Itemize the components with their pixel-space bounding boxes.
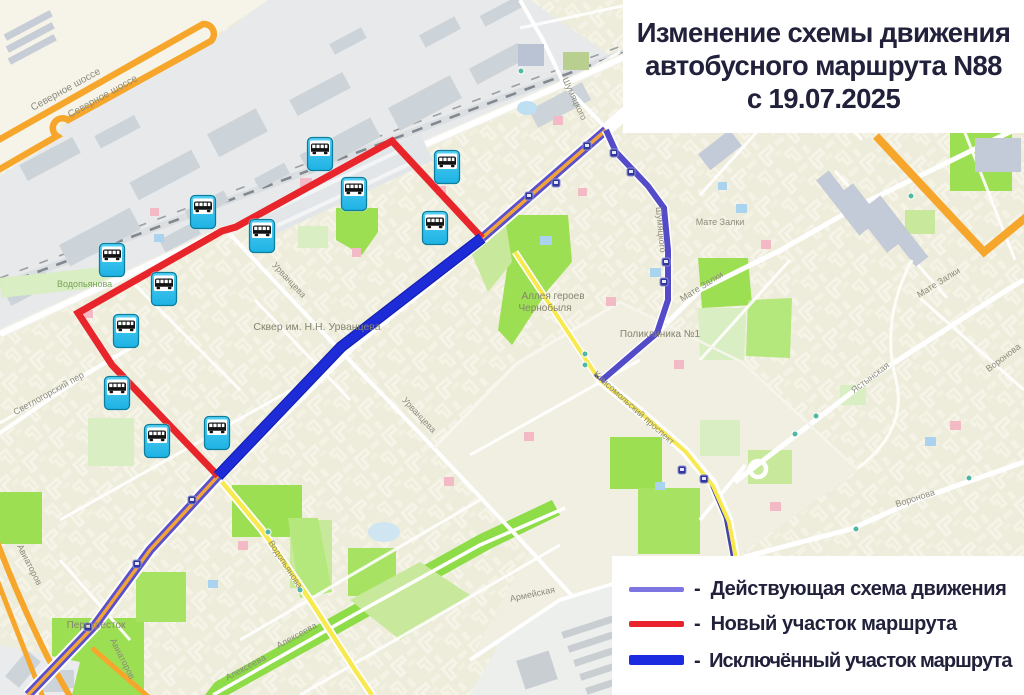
- svg-text:Поликлиника №1: Поликлиника №1: [620, 329, 701, 340]
- svg-text:Перекресток: Перекресток: [67, 620, 126, 631]
- svg-text:Водопьянова: Водопьянова: [57, 279, 112, 289]
- svg-text:Мате Залки: Мате Залки: [696, 217, 745, 227]
- svg-text:Аллея героев: Аллея героев: [521, 291, 584, 302]
- svg-text:Чернобыля: Чернобыля: [518, 302, 571, 314]
- svg-text:Сквер им. Н.Н. Урванцева: Сквер им. Н.Н. Урванцева: [253, 321, 380, 333]
